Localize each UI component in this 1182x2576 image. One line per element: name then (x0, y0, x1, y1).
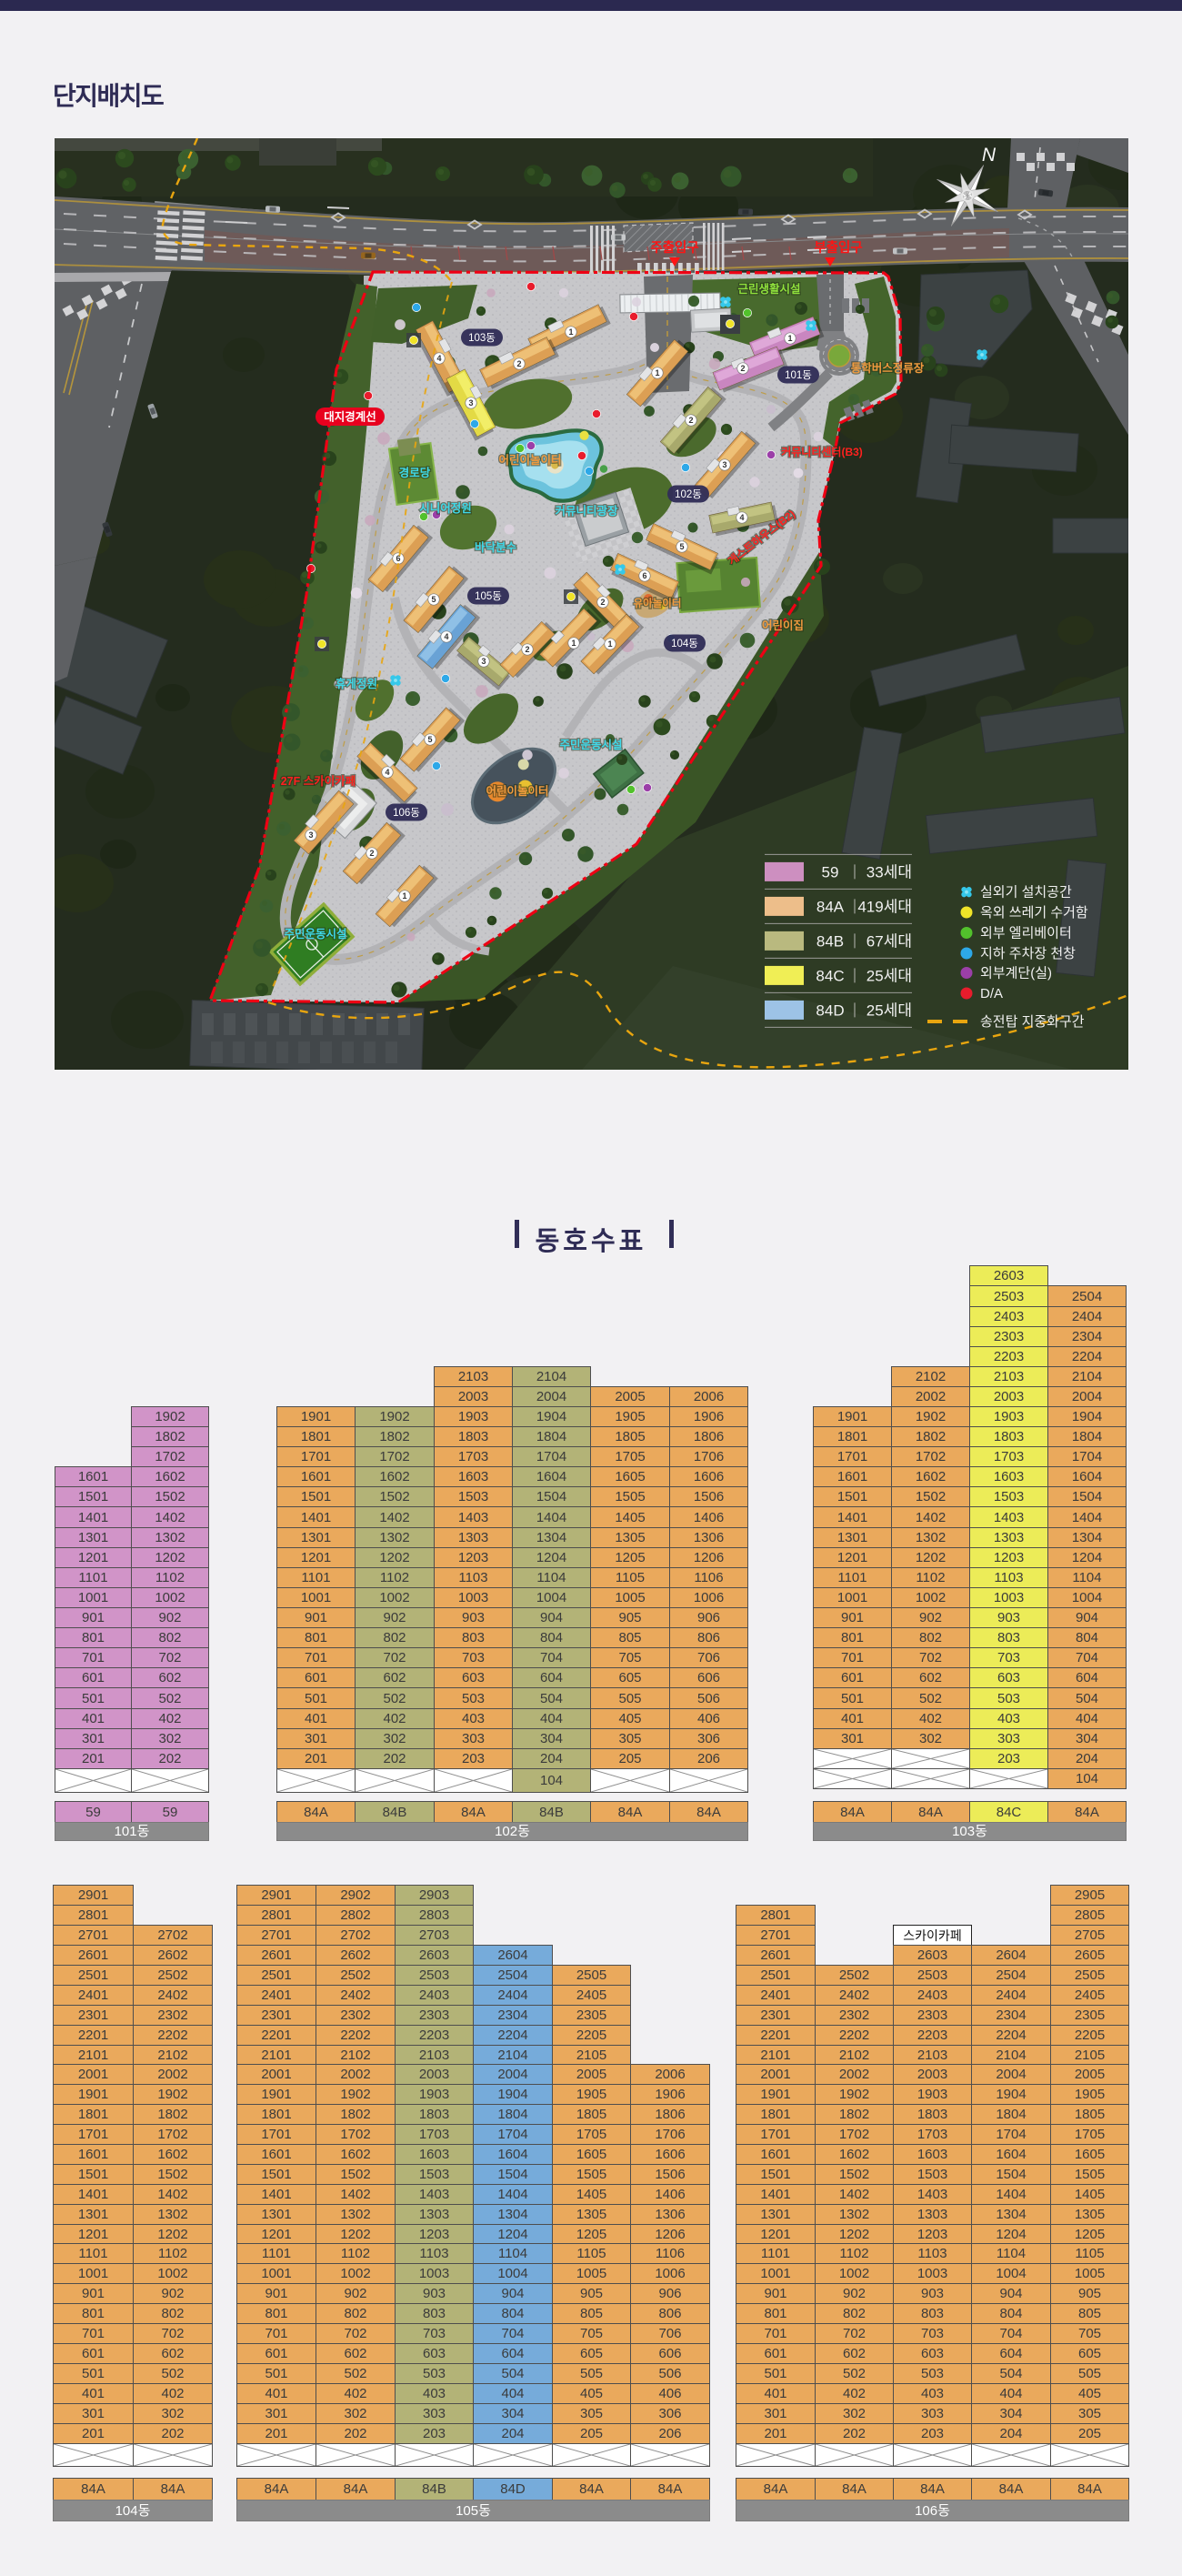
svg-text:84D: 84D (816, 1001, 844, 1019)
svg-text:2: 2 (600, 598, 605, 607)
svg-text:주민운동시설: 주민운동시설 (559, 738, 622, 751)
svg-text:D/A: D/A (980, 986, 1003, 1001)
svg-text:휴게정원: 휴게정원 (336, 677, 377, 690)
svg-text:부출입구: 부출입구 (814, 240, 862, 256)
svg-text:6: 6 (642, 571, 646, 580)
svg-text:106동: 106동 (393, 808, 420, 819)
svg-text:84B: 84B (816, 932, 844, 950)
svg-text:송전탑 지중화구간: 송전탑 지중화구간 (980, 1014, 1085, 1030)
svg-text:67세대: 67세대 (866, 932, 912, 950)
svg-text:통학버스정류장: 통학버스정류장 (851, 361, 925, 375)
svg-text:105동: 105동 (475, 591, 502, 602)
svg-text:유아놀이터: 유아놀이터 (634, 597, 682, 609)
svg-text:5: 5 (679, 542, 684, 551)
svg-text:5: 5 (427, 735, 432, 744)
svg-text:2: 2 (516, 359, 521, 368)
svg-text:27F 스카이카페: 27F 스카이카페 (281, 774, 356, 788)
svg-text:84C: 84C (816, 967, 844, 984)
svg-text:3: 3 (481, 657, 486, 666)
svg-text:25세대: 25세대 (866, 1001, 912, 1019)
svg-text:2: 2 (688, 416, 693, 425)
svg-text:25세대: 25세대 (866, 967, 912, 984)
svg-text:옥외 쓰레기 수거함: 옥외 쓰레기 수거함 (980, 905, 1088, 921)
svg-text:외부 엘리베이터: 외부 엘리베이터 (980, 926, 1072, 941)
svg-text:2: 2 (369, 849, 374, 858)
svg-text:시니어정원: 시니어정원 (419, 501, 472, 515)
svg-text:5: 5 (431, 595, 436, 604)
svg-text:3: 3 (722, 460, 726, 469)
svg-text:1: 1 (568, 327, 573, 337)
svg-text:주민운동시설: 주민운동시설 (284, 927, 346, 941)
svg-text:3: 3 (308, 830, 313, 840)
svg-text:외부계단(실): 외부계단(실) (980, 966, 1052, 981)
svg-text:바닥분수: 바닥분수 (475, 540, 517, 554)
svg-text:2: 2 (525, 645, 529, 654)
svg-text:1: 1 (571, 639, 576, 648)
svg-text:4: 4 (436, 354, 441, 363)
svg-text:어린이집: 어린이집 (762, 619, 804, 632)
svg-text:N: N (982, 145, 997, 166)
svg-text:실외기 설치공간: 실외기 설치공간 (980, 885, 1072, 901)
svg-text:4: 4 (385, 768, 389, 777)
svg-text:1: 1 (607, 639, 612, 649)
svg-text:1: 1 (655, 368, 659, 377)
svg-text:경로당: 경로당 (399, 466, 431, 479)
svg-text:1: 1 (402, 891, 406, 901)
svg-text:59: 59 (822, 863, 839, 880)
svg-text:커뮤니티광장: 커뮤니티광장 (555, 504, 618, 518)
svg-text:104동: 104동 (671, 639, 698, 649)
svg-text:101동: 101동 (785, 370, 812, 381)
svg-text:102동: 102동 (675, 489, 702, 500)
svg-text:419세대: 419세대 (857, 898, 912, 915)
svg-text:3: 3 (468, 398, 473, 408)
svg-text:2: 2 (740, 364, 745, 373)
svg-text:근린생활시설: 근린생활시설 (737, 282, 800, 296)
svg-text:4: 4 (444, 632, 448, 641)
svg-text:어린이놀이터: 어린이놀이터 (498, 453, 561, 467)
svg-text:주출입구: 주출입구 (650, 240, 698, 256)
svg-text:84A: 84A (816, 898, 845, 915)
svg-text:커뮤니티센터(B3): 커뮤니티센터(B3) (781, 445, 863, 458)
svg-text:33세대: 33세대 (866, 863, 912, 880)
svg-text:지하 주차장 천창: 지하 주차장 천창 (980, 946, 1076, 961)
svg-text:103동: 103동 (468, 333, 496, 344)
svg-text:어린이놀이터: 어린이놀이터 (486, 784, 548, 798)
svg-text:4: 4 (739, 513, 744, 522)
svg-text:1: 1 (787, 334, 792, 343)
svg-text:대지경계선: 대지경계선 (324, 410, 376, 424)
